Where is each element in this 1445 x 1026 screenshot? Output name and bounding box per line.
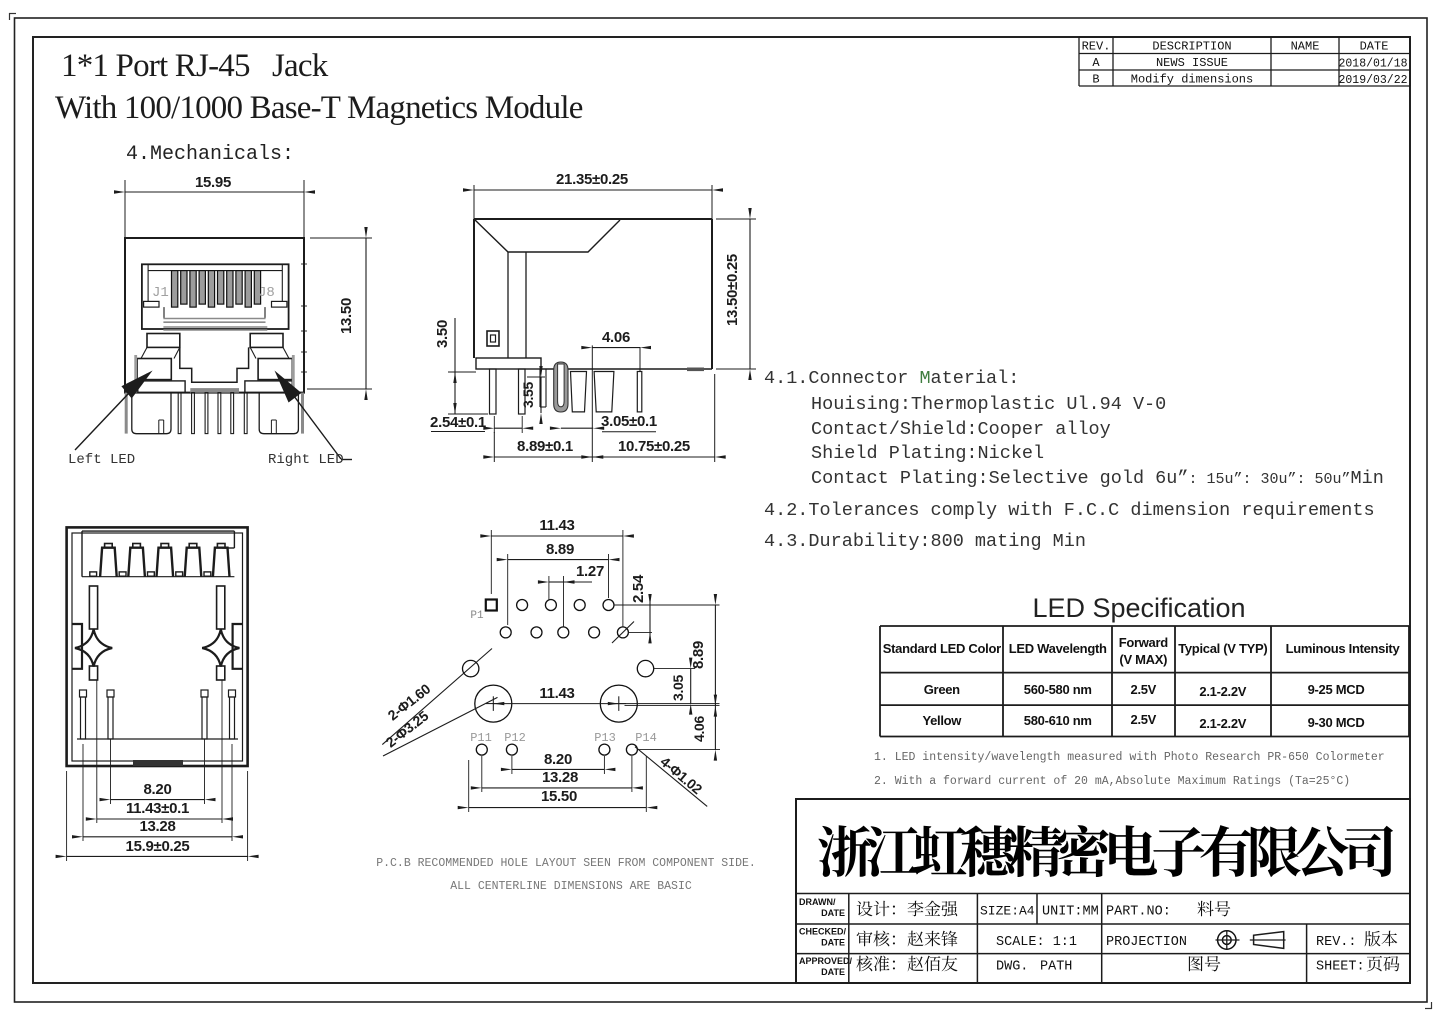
svg-text:NAME: NAME bbox=[1291, 40, 1320, 54]
svg-text:3.05: 3.05 bbox=[670, 674, 686, 701]
svg-text:1. LED intensity/wavelength me: 1. LED intensity/wavelength measured wit… bbox=[874, 751, 1385, 764]
svg-text:P14: P14 bbox=[635, 731, 657, 745]
svg-text:11.43±0.1: 11.43±0.1 bbox=[126, 800, 189, 817]
svg-text:DATE: DATE bbox=[821, 967, 845, 977]
svg-text:P1: P1 bbox=[470, 610, 484, 622]
svg-text:2.1-2.2V: 2.1-2.2V bbox=[1199, 684, 1246, 699]
svg-text:8.20: 8.20 bbox=[544, 751, 572, 768]
svg-text:Left LED: Left LED bbox=[68, 452, 135, 468]
svg-text:SCALE: 1:1: SCALE: 1:1 bbox=[996, 935, 1077, 950]
svg-text:8.89: 8.89 bbox=[546, 541, 574, 558]
svg-text:PATH: PATH bbox=[1040, 960, 1072, 975]
svg-text:580-610 nm: 580-610 nm bbox=[1024, 713, 1092, 728]
svg-text:Yellow: Yellow bbox=[922, 713, 962, 728]
svg-text:3.05±0.1: 3.05±0.1 bbox=[601, 413, 657, 430]
svg-text:9-25 MCD: 9-25 MCD bbox=[1308, 682, 1365, 697]
svg-text:2019/03/22: 2019/03/22 bbox=[1338, 74, 1407, 87]
svg-text:Shield Plating:Nickel: Shield Plating:Nickel bbox=[811, 443, 1044, 464]
svg-text:3.50: 3.50 bbox=[434, 320, 451, 348]
svg-text:(V MAX): (V MAX) bbox=[1119, 652, 1167, 667]
svg-text:560-580 nm: 560-580 nm bbox=[1024, 682, 1092, 697]
svg-text:LED Specification: LED Specification bbox=[1032, 593, 1245, 623]
svg-text:1*1 Port RJ-45 Jack: 1*1 Port RJ-45 Jack bbox=[61, 48, 329, 84]
svg-text:LED Wavelength: LED Wavelength bbox=[1009, 641, 1107, 656]
svg-text:21.35±0.25: 21.35±0.25 bbox=[556, 171, 628, 188]
svg-text:PART.NO:: PART.NO: bbox=[1106, 905, 1171, 920]
svg-text:2.1-2.2V: 2.1-2.2V bbox=[1199, 716, 1246, 731]
svg-text:2.5V: 2.5V bbox=[1131, 682, 1157, 697]
svg-text:With 100/1000 Base-T Magnetics: With 100/1000 Base-T Magnetics Module bbox=[55, 90, 583, 126]
svg-text:DATE: DATE bbox=[821, 938, 845, 948]
svg-text:Contact Plating:Selective gold: Contact Plating:Selective gold 6u”: 15u”… bbox=[811, 468, 1384, 489]
svg-text:DATE: DATE bbox=[1360, 40, 1389, 54]
svg-text:2.54: 2.54 bbox=[630, 574, 647, 603]
svg-text:P13: P13 bbox=[594, 731, 616, 745]
svg-text:8.89: 8.89 bbox=[690, 641, 707, 669]
svg-text:P11: P11 bbox=[470, 731, 492, 745]
svg-text:2.54±0.1: 2.54±0.1 bbox=[430, 414, 486, 431]
svg-text:DATE: DATE bbox=[821, 908, 845, 918]
svg-text:APPROVED/: APPROVED/ bbox=[799, 956, 853, 966]
svg-text:P.C.B RECOMMENDED HOLE LAYOUT: P.C.B RECOMMENDED HOLE LAYOUT SEEN FROM … bbox=[376, 857, 756, 870]
svg-text:2.5V: 2.5V bbox=[1131, 712, 1157, 727]
svg-text:2018/01/18: 2018/01/18 bbox=[1338, 58, 1407, 71]
svg-text:REV.: REV. bbox=[1082, 40, 1111, 54]
svg-text:Contact/Shield:Cooper alloy: Contact/Shield:Cooper alloy bbox=[811, 419, 1111, 440]
svg-text:P12: P12 bbox=[504, 731, 526, 745]
svg-text:A: A bbox=[1092, 56, 1100, 70]
svg-text:Green: Green bbox=[924, 682, 960, 697]
svg-text:8.20: 8.20 bbox=[144, 781, 172, 798]
svg-text:Houising:Thermoplastic Ul.94 V: Houising:Thermoplastic Ul.94 V-0 bbox=[811, 394, 1166, 415]
svg-text:13.50±0.25: 13.50±0.25 bbox=[724, 254, 741, 326]
svg-text:J1: J1 bbox=[152, 285, 169, 301]
svg-text:9-30 MCD: 9-30 MCD bbox=[1308, 715, 1365, 730]
svg-text:Right LED: Right LED bbox=[268, 452, 344, 468]
svg-text:Typical (V TYP): Typical (V TYP) bbox=[1178, 641, 1267, 656]
svg-text:Luminous Intensity: Luminous Intensity bbox=[1286, 641, 1401, 656]
svg-text:4.1.Connector Material:: 4.1.Connector Material: bbox=[764, 368, 1019, 389]
svg-text:NEWS ISSUE: NEWS ISSUE bbox=[1156, 56, 1228, 70]
svg-text:DRAWN/: DRAWN/ bbox=[799, 897, 836, 907]
svg-text:Forward: Forward bbox=[1119, 635, 1169, 650]
svg-text:UNIT:MM: UNIT:MM bbox=[1042, 905, 1099, 920]
svg-text:3.55: 3.55 bbox=[520, 381, 536, 408]
svg-text:13.28: 13.28 bbox=[139, 818, 175, 835]
svg-text:13.50: 13.50 bbox=[338, 298, 355, 334]
svg-text:15.95: 15.95 bbox=[195, 174, 231, 191]
svg-text:DESCRIPTION: DESCRIPTION bbox=[1152, 40, 1231, 54]
svg-text:4.06: 4.06 bbox=[691, 715, 707, 742]
svg-text:CHECKED/: CHECKED/ bbox=[799, 927, 847, 937]
svg-text:SIZE:A4: SIZE:A4 bbox=[980, 904, 1035, 919]
svg-text:10.75±0.25: 10.75±0.25 bbox=[618, 438, 690, 455]
svg-text:8.89±0.1: 8.89±0.1 bbox=[517, 438, 573, 455]
svg-text:J8: J8 bbox=[258, 285, 275, 301]
svg-text:4.06: 4.06 bbox=[602, 329, 630, 346]
svg-text:11.43: 11.43 bbox=[539, 685, 574, 702]
svg-text:DWG.: DWG. bbox=[996, 960, 1028, 975]
svg-text:15.50: 15.50 bbox=[541, 788, 577, 805]
svg-text:11.43: 11.43 bbox=[539, 517, 574, 534]
svg-text:1.27: 1.27 bbox=[576, 563, 604, 580]
svg-text:4.2.Tolerances comply with F.C: 4.2.Tolerances comply with F.C.C dimensi… bbox=[764, 500, 1375, 521]
svg-text:15.9±0.25: 15.9±0.25 bbox=[126, 838, 190, 855]
svg-text:ALL CENTERLINE DIMENSIONS ARE: ALL CENTERLINE DIMENSIONS ARE BASIC bbox=[450, 880, 692, 893]
svg-text:4.Mechanicals:: 4.Mechanicals: bbox=[126, 143, 294, 166]
svg-text:13.28: 13.28 bbox=[542, 769, 578, 786]
svg-text:Standard LED Color: Standard LED Color bbox=[883, 641, 1001, 656]
svg-text:REV.:: REV.: bbox=[1316, 935, 1357, 950]
svg-text:4.3.Durability:800 mating Min: 4.3.Durability:800 mating Min bbox=[764, 531, 1086, 552]
svg-text:B: B bbox=[1092, 73, 1099, 87]
svg-text:SHEET:: SHEET: bbox=[1316, 960, 1365, 975]
svg-text:2. With a forward current of 2: 2. With a forward current of 20 mA,Absol… bbox=[874, 775, 1350, 788]
svg-text:PROJECTION: PROJECTION bbox=[1106, 935, 1187, 950]
svg-text:Modify dimensions: Modify dimensions bbox=[1131, 73, 1253, 87]
